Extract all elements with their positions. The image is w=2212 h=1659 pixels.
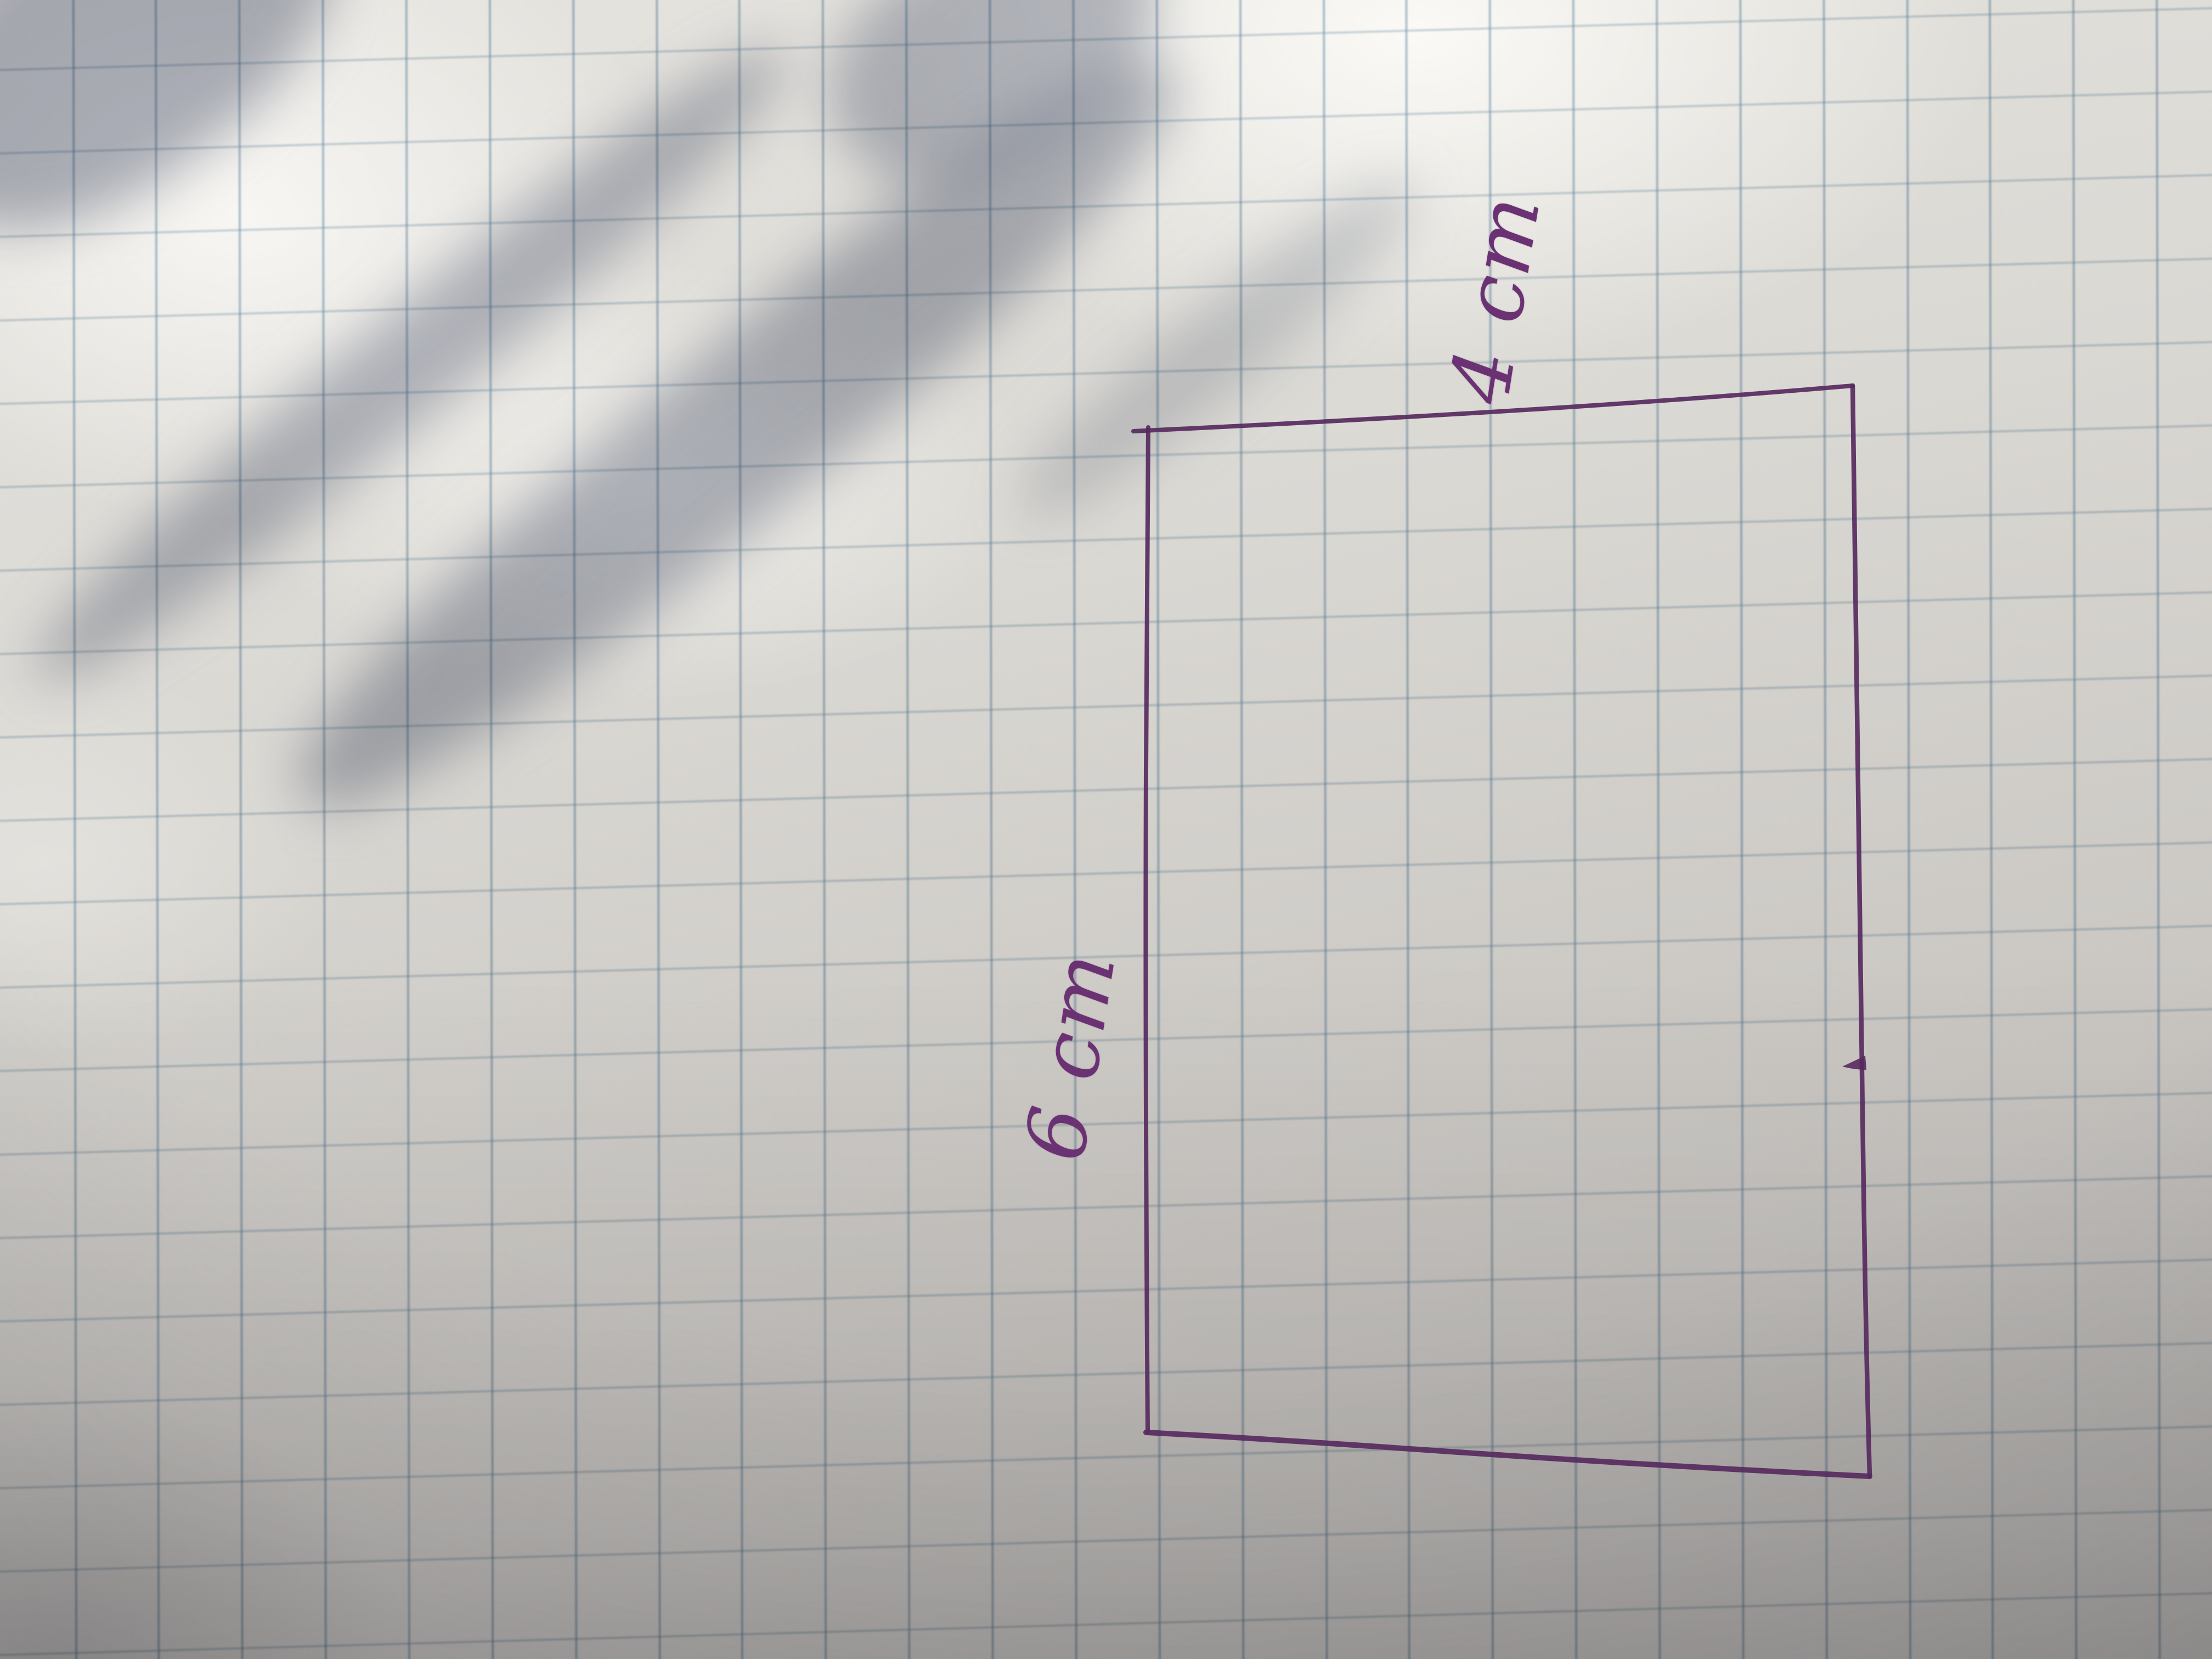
rectangle-left-edge bbox=[1145, 427, 1148, 1432]
rectangle-right-edge bbox=[1853, 386, 1870, 1476]
ink-tick bbox=[1842, 1056, 1866, 1070]
rectangle-bottom-edge bbox=[1146, 1432, 1870, 1476]
notebook-photo: 4 cm 6 cm bbox=[0, 0, 2212, 1659]
drawn-rectangle bbox=[0, 0, 2212, 1659]
